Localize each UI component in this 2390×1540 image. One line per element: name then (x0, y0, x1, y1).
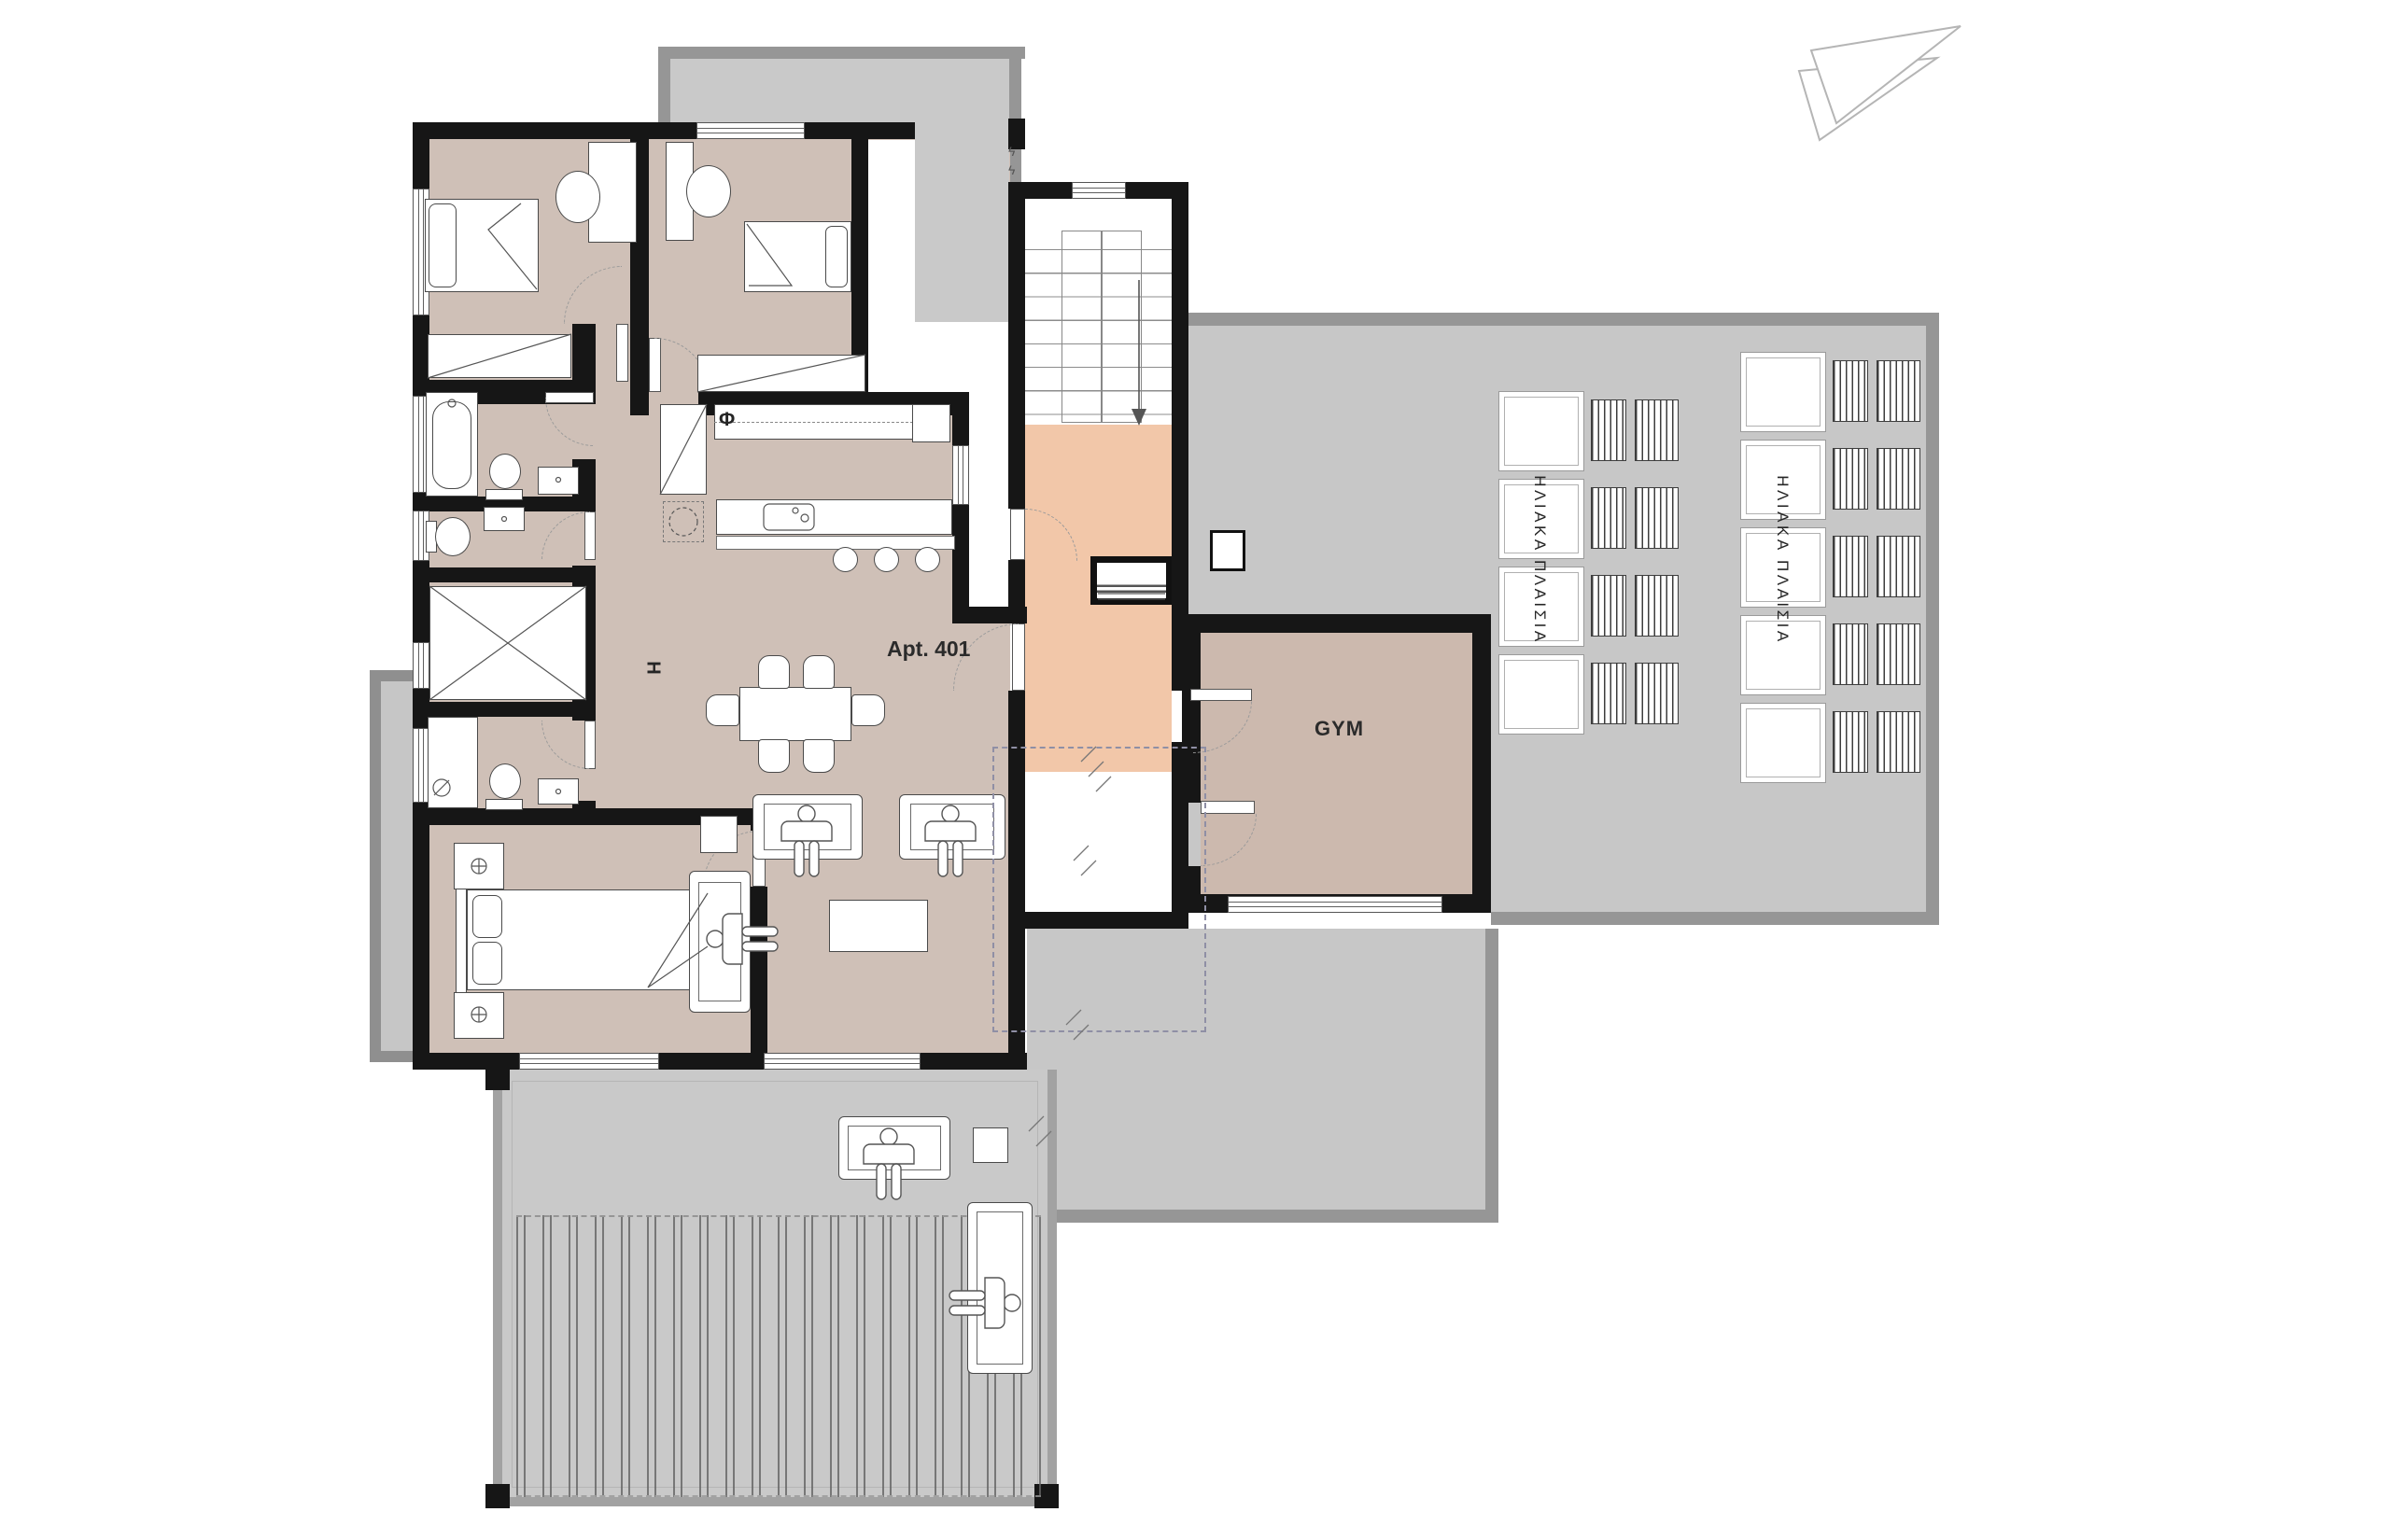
plan-element (793, 508, 798, 513)
plan-element (1132, 409, 1146, 426)
north-arrow-icon (1778, 11, 1965, 142)
plan-element (660, 404, 707, 495)
stair-direction-arrow (1132, 280, 1146, 426)
plan-element (448, 399, 456, 407)
plan-element (488, 203, 537, 289)
plan-element (502, 517, 507, 522)
plan-element (434, 780, 449, 795)
plan-element (1074, 846, 1096, 875)
plan-element (1811, 26, 1961, 123)
plan-element (648, 893, 708, 987)
floor-plan: ΗΛΙΑΚΑ ΠΛΑΙΣΙΑ ΗΛΙΑΚΑ ΠΛΑΙΣΙΑ Apt. 401 G… (0, 0, 2390, 1540)
plan-element (1098, 594, 1165, 599)
person-icon (781, 805, 832, 876)
plan-element (764, 504, 814, 530)
plan-element (428, 203, 1165, 1022)
plan-element (1081, 747, 1111, 791)
plan-element (1029, 1116, 1051, 1146)
plan-element (747, 224, 792, 286)
plan-element (428, 334, 571, 378)
detail-overlay (0, 0, 2390, 1540)
plan-element (429, 586, 586, 700)
plan-element (697, 355, 865, 392)
person-icon (864, 1128, 914, 1199)
plan-element (1029, 747, 1111, 1146)
person-icon (707, 914, 778, 964)
person-icon (925, 805, 976, 876)
person-icon (949, 1278, 1020, 1328)
plan-element (801, 514, 808, 522)
plan-element (556, 478, 561, 483)
plan-element (556, 790, 561, 794)
plan-element (669, 508, 697, 536)
plan-element (1066, 1010, 1089, 1040)
